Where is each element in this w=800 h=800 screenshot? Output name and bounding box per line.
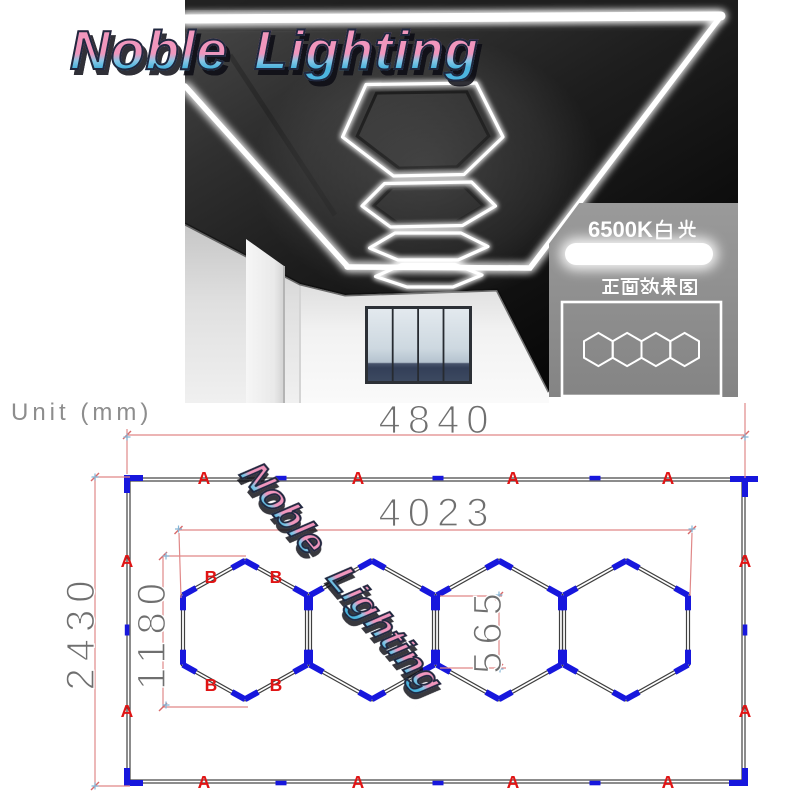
svg-text:B: B <box>270 567 283 587</box>
svg-text:A: A <box>507 772 520 792</box>
svg-text:A: A <box>198 468 211 488</box>
svg-text:A: A <box>507 468 520 488</box>
svg-text:B: B <box>270 675 283 695</box>
svg-text:B: B <box>205 675 218 695</box>
svg-text:4023: 4023 <box>379 491 496 535</box>
svg-text:A: A <box>352 468 365 488</box>
svg-text:A: A <box>352 772 365 792</box>
svg-text:A: A <box>121 551 134 571</box>
svg-text:A: A <box>121 701 134 721</box>
svg-text:A: A <box>662 468 675 488</box>
svg-text:A: A <box>662 772 675 792</box>
svg-text:565: 565 <box>466 586 510 674</box>
svg-text:4840: 4840 <box>379 398 496 442</box>
svg-text:2430: 2430 <box>59 574 103 691</box>
svg-text:A: A <box>198 772 211 792</box>
svg-text:A: A <box>739 551 752 571</box>
svg-text:B: B <box>205 567 218 587</box>
svg-text:1180: 1180 <box>130 576 174 690</box>
svg-text:A: A <box>739 701 752 721</box>
